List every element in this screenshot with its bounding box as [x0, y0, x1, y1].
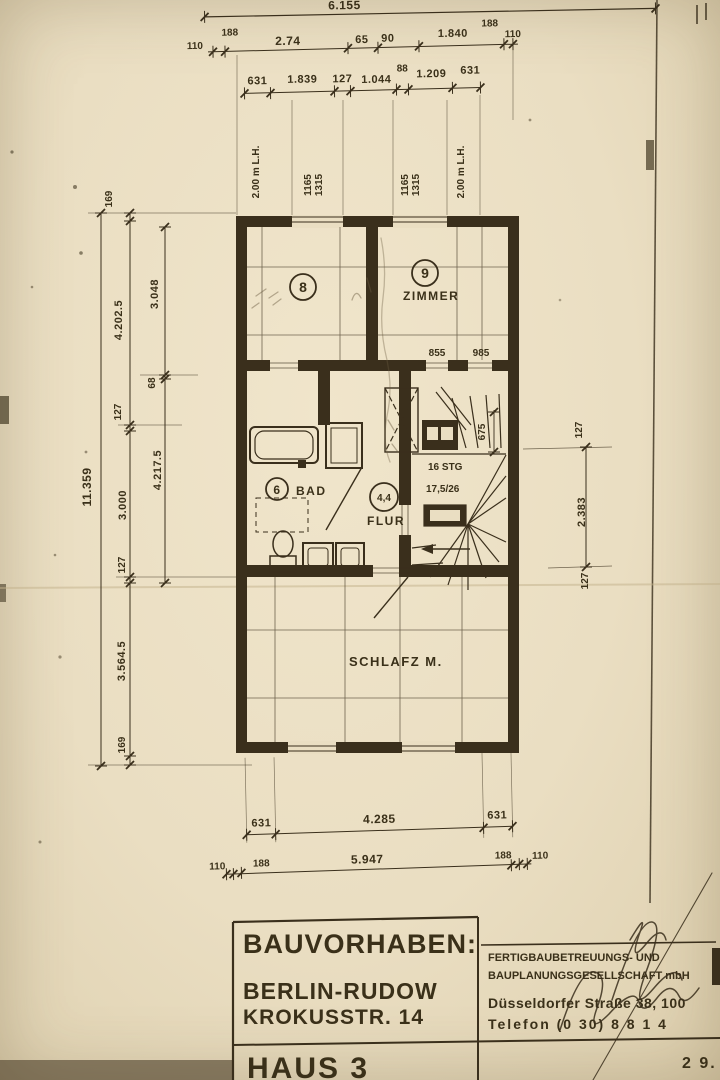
- project-city: BERLIN-RUDOW: [243, 978, 438, 1004]
- wall-top: [236, 216, 519, 227]
- dim: 169: [117, 736, 128, 753]
- window-size-label: 1165: [400, 174, 411, 196]
- window-opening: [288, 741, 336, 754]
- wall-hall: [399, 535, 411, 577]
- company-phone: Telefon (0 30) 8 8 1 4: [488, 1016, 668, 1032]
- dim: 631: [487, 809, 507, 821]
- dim-top-total: 6.155: [328, 0, 361, 12]
- company-address: Düsseldorfer Straße 38, 100: [488, 995, 686, 1011]
- dim: 3.000: [117, 490, 129, 520]
- flur-name: FLUR: [367, 514, 405, 528]
- flur-number: 4,4: [377, 493, 391, 504]
- wall-hall: [399, 371, 411, 505]
- sill-height: 985: [473, 348, 490, 359]
- door-swing-bath: [326, 467, 362, 530]
- sheet-edge-line: [650, 0, 657, 903]
- dim: 631: [251, 817, 271, 829]
- wall-mid: [298, 360, 426, 371]
- scanned-floor-plan-sheet: 6.155 110 188 2.74 65 90 1.840 188 110 6…: [0, 0, 720, 1080]
- dim-overall-height: 11.359: [80, 467, 94, 506]
- wall-mid: [247, 360, 270, 371]
- bad-name: BAD: [296, 484, 327, 498]
- dim: 3.048: [149, 279, 161, 309]
- wall-right: [508, 216, 519, 753]
- room8-number: 8: [299, 279, 307, 295]
- dim: 88: [397, 63, 409, 74]
- sill-height: 855: [429, 348, 446, 359]
- scan-artifacts: [0, 0, 720, 1080]
- project-label: BAUVORHABEN:: [243, 929, 477, 959]
- dim: 1.044: [361, 74, 392, 86]
- wall-left: [236, 216, 247, 753]
- dim-shaft: 675: [477, 423, 488, 440]
- dim: 5.947: [351, 852, 384, 867]
- dim: 110: [209, 861, 226, 872]
- dim: 127: [117, 556, 128, 573]
- cabinet-inner: [331, 428, 357, 463]
- floor-plan-drawing: 6.155 110 188 2.74 65 90 1.840 188 110 6…: [0, 0, 720, 1080]
- dim: 1.840: [438, 28, 468, 40]
- print-mark: [712, 948, 720, 985]
- dim: 1.839: [287, 74, 317, 86]
- wall-mid: [448, 360, 468, 371]
- dim: 4.217.5: [152, 450, 164, 490]
- window-annotations: 2.00 m L.H. 1165 1315 1165 1315 2.00 m L…: [251, 145, 467, 198]
- dim: 631: [460, 65, 480, 77]
- date-stamp: 2 9.: [682, 1055, 717, 1072]
- lintel-height-label: 2.00 m L.H.: [456, 145, 467, 198]
- dim: 2.74: [275, 34, 301, 48]
- wall-lower: [410, 565, 508, 577]
- door-swing-bedroom: [374, 577, 408, 618]
- dim: 631: [247, 75, 267, 87]
- stair-count: 16 STG: [428, 462, 463, 473]
- wall-mid: [492, 360, 508, 371]
- edge-smudge: [646, 140, 654, 170]
- dim: 3.564.5: [116, 641, 128, 681]
- right-dimension-chain: 127 2.383 127: [523, 421, 612, 589]
- bottom-dimension-rows: 631 4.285 631 110 188 5.947 188 110: [207, 751, 549, 880]
- wall-bottom: [236, 742, 519, 753]
- top-dimension-rows: 6.155 110 188 2.74 65 90 1.840 188 110 6…: [186, 0, 660, 100]
- dim: 4.285: [363, 812, 396, 827]
- room9-number: 9: [421, 265, 429, 281]
- room9-name: ZIMMER: [403, 289, 459, 303]
- window-size-label: 1315: [411, 173, 422, 196]
- project-street: KROKUSSTR. 14: [243, 1006, 424, 1029]
- wall-partition: [366, 227, 378, 362]
- scan-shadow-strip: [0, 1060, 233, 1080]
- dim: 127: [580, 572, 591, 589]
- dim: 90: [381, 33, 394, 45]
- dim: 110: [187, 41, 204, 52]
- dim: 188: [253, 858, 270, 869]
- bathtub-inner: [255, 431, 313, 459]
- stair-direction-arrow: [421, 544, 433, 554]
- wall-stub: [318, 371, 330, 425]
- toilet-bowl: [273, 531, 293, 557]
- window-size-label: 1165: [303, 174, 314, 196]
- dim: 169: [104, 190, 115, 207]
- house-number: HAUS 3: [247, 1052, 369, 1080]
- dim: 127: [574, 421, 585, 438]
- lintel-height-label: 2.00 m L.H.: [251, 145, 262, 198]
- dim: 188: [221, 27, 238, 38]
- bedroom-name: SCHLAFZ M.: [349, 654, 443, 669]
- fold-crease: [0, 584, 720, 588]
- stair-ratio: 17,5/26: [426, 484, 460, 495]
- washbasin-inner: [308, 548, 328, 566]
- company-line1: FERTIGBAUBETREUUNGS- UND: [488, 952, 660, 964]
- dim: 65: [355, 34, 368, 46]
- dim: 127: [332, 73, 352, 85]
- dim: 188: [481, 18, 498, 29]
- window-opening: [402, 741, 455, 754]
- dim: 188: [495, 850, 512, 861]
- dim: 127: [113, 403, 124, 420]
- window-size-label: 1315: [314, 173, 325, 196]
- dim: 1.209: [416, 68, 446, 80]
- shower-area: [256, 498, 308, 532]
- company-line2: BAUPLANUNGSGESELLSCHAFT mbH: [488, 970, 690, 982]
- title-block: BAUVORHABEN: BERLIN-RUDOW KROKUSSTR. 14 …: [233, 873, 720, 1080]
- dim: 110: [532, 850, 549, 861]
- dim: 110: [505, 29, 522, 40]
- washbasin-inner: [341, 548, 359, 566]
- dim: 68: [147, 377, 158, 389]
- left-dimension-chains: 11.359 169 4.202.5 127 3.000 127 3.564.5…: [80, 190, 252, 770]
- dim: 2.383: [576, 497, 588, 527]
- bad-number: 6: [273, 483, 280, 497]
- dim: 4.202.5: [113, 300, 125, 340]
